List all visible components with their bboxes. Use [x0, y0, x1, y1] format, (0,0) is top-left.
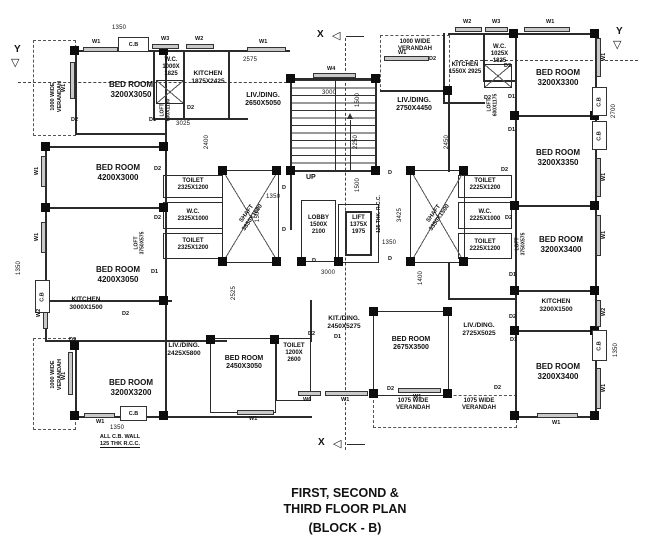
- door-tag-d: D: [388, 170, 392, 176]
- window-tag-w1: W1: [413, 394, 421, 400]
- window-tag-w1: W1: [249, 416, 257, 422]
- wall-segment: [448, 90, 450, 172]
- door-tag-d: D: [282, 227, 286, 233]
- room-label: W.C.1000X 1825: [156, 57, 186, 79]
- window-tag-w4: W4: [327, 66, 335, 72]
- door-tag-d: D: [282, 185, 286, 191]
- cb-label: C.B: [39, 292, 45, 301]
- window-tag-w1: W1: [546, 19, 554, 25]
- cb-box: C.B: [118, 37, 149, 52]
- window-bar: [325, 391, 368, 396]
- window-bar: [384, 56, 429, 61]
- room-label: W.C.2325X1000: [166, 209, 220, 223]
- title-line3: (BLOCK - B): [240, 521, 450, 537]
- room-label: LIV./DING.2725X5025: [450, 322, 508, 338]
- room-label: BED ROOM3200X3200: [91, 378, 171, 397]
- section-marker-x: X: [317, 29, 324, 40]
- loft-label: LOFT600X1175: [474, 89, 510, 121]
- dimension: 1500: [243, 210, 273, 220]
- door-tag-d2: D2: [187, 105, 194, 111]
- section-arrow-icon: ◁: [332, 29, 340, 42]
- dimension: 1350: [110, 425, 124, 431]
- verandah-label: 1075 WIDEVERANDAH: [386, 398, 440, 412]
- room-label: LIV./DING.2750X4450: [384, 97, 444, 114]
- room-label: BED ROOM2675X3500: [380, 336, 442, 353]
- window-tag-w3: W3: [492, 19, 500, 25]
- window-tag-w1: W1: [594, 231, 614, 239]
- section-arrow-tail: [347, 444, 365, 445]
- window-tag-w1: W1: [594, 384, 614, 392]
- dimension: 2250: [341, 137, 371, 147]
- dimension: 1350: [382, 240, 396, 246]
- window-tag-w6: W6: [303, 397, 311, 403]
- section-arrow-tail: [346, 36, 364, 37]
- room-label: KIT./DING.2450X5275: [318, 315, 370, 331]
- window-tag-w1: W1: [92, 39, 100, 45]
- window-bar: [84, 413, 115, 418]
- verandah-label: 1000 WIDEVERANDAH: [386, 39, 444, 53]
- door-tag-d2: D2: [154, 166, 161, 172]
- window-tag-w2: W2: [463, 19, 471, 25]
- room-label: KITCHEN3000X1500: [58, 296, 114, 312]
- wall-segment: [515, 330, 597, 332]
- room-label: TOILET2225X1200: [460, 178, 510, 192]
- door-tag-d1: D1: [370, 307, 377, 313]
- door-tag-d1: D1: [149, 117, 156, 123]
- bedroom-box: [373, 311, 449, 396]
- window-tag-w2: W2: [594, 308, 614, 316]
- dimension: 1500: [343, 180, 373, 190]
- window-tag-w1: W1: [54, 372, 74, 380]
- section-marker-x: X: [318, 437, 325, 448]
- room-label: LIV./DING.2650X5050: [236, 92, 290, 109]
- dimension: 2450: [432, 137, 462, 147]
- room-label: LIV./DING.2425X5800: [158, 342, 210, 358]
- title-line1: FIRST, SECOND &: [240, 486, 450, 502]
- wall-segment: [290, 170, 379, 172]
- door-tag-d1: D1: [510, 337, 517, 343]
- bedroom-box: [210, 338, 276, 413]
- dimension: 2700: [599, 106, 629, 116]
- wall-segment: [75, 133, 167, 135]
- dimension: 3000: [321, 270, 335, 276]
- floor-plan: UP C.B C.B C.B C.B C.B C.B: [0, 0, 653, 540]
- dimension: 1350: [266, 194, 280, 200]
- window-tag-w1: W1: [398, 50, 406, 56]
- wall-segment: [448, 33, 597, 35]
- wall-segment: [448, 262, 450, 300]
- room-label: LOBBY1500X 2100: [303, 215, 334, 237]
- door-tag-d2: D2: [71, 117, 78, 123]
- room-label: BED ROOM3200X3300: [518, 68, 598, 87]
- cb-wall-note-line2: 125 THK R.C.C.: [100, 441, 140, 448]
- dimension: 3000: [322, 90, 336, 96]
- wall-segment: [515, 33, 517, 418]
- section-marker-y: Y: [14, 44, 21, 55]
- window-bar: [455, 27, 482, 32]
- room-label: BED ROOM3200X3400: [518, 362, 598, 381]
- room-label: W.C.2225X1000: [460, 209, 510, 223]
- window-bar: [83, 47, 118, 52]
- window-tag-w1: W1: [27, 167, 47, 175]
- door-tag-d2: D2: [501, 167, 508, 173]
- shaft-label: SHAFT3350X1500: [410, 170, 465, 263]
- room-label: BED ROOM2450X3050: [214, 355, 274, 372]
- dimension: 2400: [192, 137, 222, 147]
- door-tag-d2: D2: [429, 56, 436, 62]
- door-tag-d: D: [312, 258, 316, 264]
- dimension: 2575: [243, 57, 257, 63]
- wall-segment: [515, 205, 597, 207]
- window-bar: [152, 44, 179, 49]
- window-bar: [524, 27, 570, 32]
- door-tag-d1: D1: [508, 127, 515, 133]
- door-tag-d2: D2: [308, 331, 315, 337]
- cb-label: C.B: [129, 411, 138, 417]
- dimension: 1350: [601, 345, 631, 355]
- wall-segment: [448, 298, 517, 300]
- wall-segment: [380, 90, 450, 92]
- room-label: BED ROOM3200X3350: [518, 148, 598, 167]
- window-tag-w1: W1: [259, 39, 267, 45]
- dimension: 1400: [406, 273, 436, 283]
- dimension: 1350: [112, 25, 126, 31]
- door-tag-d1: D1: [509, 272, 516, 278]
- wall-segment: [515, 290, 597, 292]
- window-bar: [313, 73, 356, 78]
- window-tag-w2: W2: [195, 36, 203, 42]
- window-tag-w2: W2: [29, 309, 49, 317]
- window-bar: [485, 27, 508, 32]
- cb-box: C.B: [592, 121, 607, 150]
- verandah-label: 1075 WIDEVERANDAH: [452, 398, 506, 412]
- cb-label: C.B: [129, 42, 138, 48]
- door-tag-d1: D1: [334, 334, 341, 340]
- window-tag-w1: W1: [552, 420, 560, 426]
- door-tag-d1: D1: [151, 269, 158, 275]
- door-tag-d2: D2: [69, 337, 76, 343]
- cb-wall-note: ALL C.B. WALL 125 THK R.C.C.: [88, 434, 152, 447]
- room-label: BED ROOM4200X3050: [78, 265, 158, 284]
- window-tag-w1: W1: [594, 173, 614, 181]
- door-tag-d2: D2: [504, 63, 511, 69]
- room-label: TOILET2325X1200: [166, 178, 220, 192]
- room-label: BED ROOM4200X3000: [78, 163, 158, 182]
- section-marker-y: Y: [616, 26, 623, 37]
- verandah-label: 1000 WIDEVERANDAH: [32, 72, 82, 122]
- section-arrow-icon: ▽: [11, 56, 19, 69]
- cb-wall-note-line1: ALL C.B. WALL: [100, 434, 140, 440]
- room-label: KITCHEN1875X2425: [184, 70, 232, 86]
- window-bar: [237, 410, 274, 415]
- window-tag-w1: W1: [27, 233, 47, 241]
- door-tag-d2: D2: [494, 385, 501, 391]
- up-label: UP: [306, 174, 316, 181]
- window-tag-w1: W1: [54, 84, 74, 92]
- dimension: 1350: [4, 263, 34, 273]
- section-arrow-icon: ◁: [333, 437, 341, 450]
- window-tag-w1: W1: [341, 397, 349, 403]
- window-tag-w1: W1: [594, 53, 614, 61]
- section-arrow-icon: ▽: [613, 38, 621, 51]
- door-tag-d2: D2: [154, 215, 161, 221]
- dimension: 2525: [219, 288, 249, 298]
- door-tag-d: D: [388, 256, 392, 262]
- drawing-title: FIRST, SECOND & THIRD FLOOR PLAN (BLOCK …: [240, 486, 450, 537]
- wall-segment: [45, 207, 167, 209]
- dimension: 3025: [176, 121, 190, 127]
- rcc-note: 125 THK. R.C.C.: [349, 209, 409, 219]
- title-line2: THIRD FLOOR PLAN: [240, 502, 450, 518]
- door-tag-d2: D2: [509, 314, 516, 320]
- door-tag-d1: D1: [508, 94, 515, 100]
- window-bar: [247, 47, 286, 52]
- room-label: KITCHEN3200X1500: [528, 298, 584, 314]
- door-tag-d2: D2: [505, 215, 512, 221]
- door-tag-d2: D2: [484, 95, 491, 101]
- room-label: TOILET1200X 2600: [281, 343, 307, 365]
- window-tag-w1: W1: [96, 419, 104, 425]
- cb-label: C.B: [596, 97, 602, 106]
- door-tag-d2: D2: [122, 311, 129, 317]
- door-tag-d2: D2: [387, 386, 394, 392]
- dimension: 1500: [343, 95, 373, 105]
- window-bar: [186, 44, 214, 49]
- wall-segment: [515, 115, 597, 117]
- room-label: TOILET2325X1200: [166, 238, 220, 252]
- stair-up-arrow-icon: [347, 113, 353, 119]
- cb-box: C.B: [120, 406, 147, 421]
- window-tag-w3: W3: [161, 36, 169, 42]
- cb-label: C.B: [596, 131, 602, 140]
- loft-label: LOFT3750X575: [502, 228, 538, 260]
- window-bar: [537, 413, 578, 418]
- loft-label: LOFT3750X575: [121, 227, 157, 259]
- wall-segment: [45, 146, 167, 148]
- window-bar: [398, 388, 441, 393]
- window-bar: [298, 391, 321, 396]
- room-label: KITCHEN1550X 2925: [448, 62, 482, 76]
